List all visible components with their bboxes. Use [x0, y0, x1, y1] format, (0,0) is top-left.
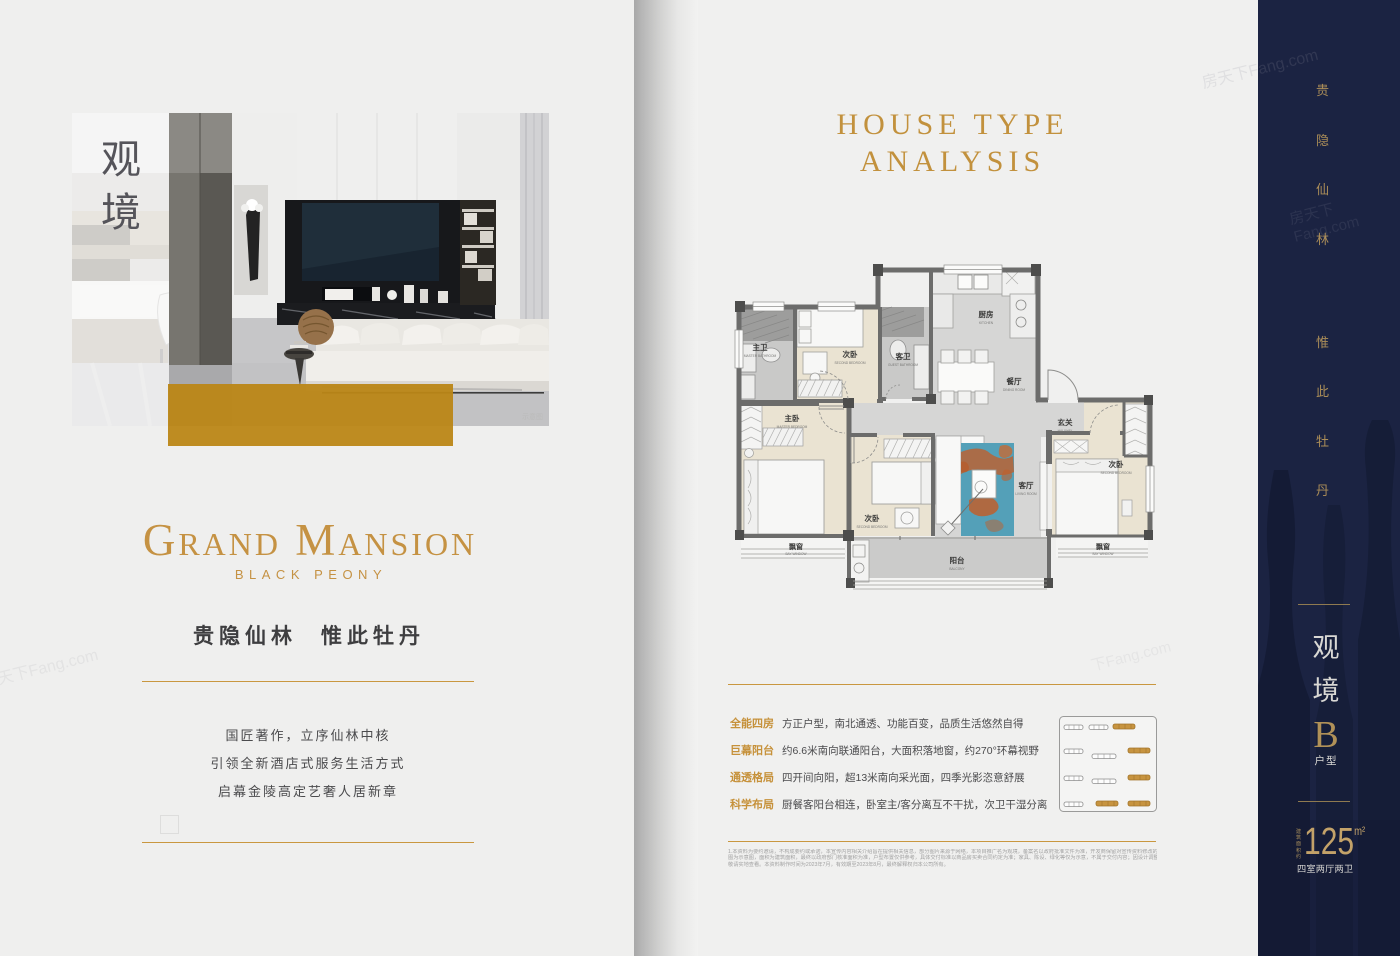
svg-text:次卧: 次卧: [1109, 459, 1125, 469]
svg-text:飘窗: 飘窗: [789, 542, 803, 551]
svg-text:客厅: 客厅: [1018, 480, 1035, 490]
svg-text:示意图: 示意图: [522, 412, 543, 421]
svg-text:HALLWAY: HALLWAY: [1058, 429, 1074, 433]
svg-text:餐厅: 餐厅: [1006, 376, 1022, 386]
svg-text:玄关: 玄关: [1058, 417, 1074, 427]
svg-text:主卫: 主卫: [753, 342, 768, 352]
svg-text:BALCONY: BALCONY: [949, 567, 965, 571]
svg-text:KITCHEN: KITCHEN: [979, 321, 994, 325]
svg-text:厨房: 厨房: [979, 309, 994, 319]
svg-text:MASTER BEDROOM: MASTER BEDROOM: [777, 425, 808, 429]
svg-text:MASTER BATHROOM: MASTER BATHROOM: [744, 354, 777, 358]
svg-text:BAY WINDOW: BAY WINDOW: [1093, 552, 1114, 556]
svg-text:SECOND BEDROOM: SECOND BEDROOM: [857, 525, 888, 529]
svg-text:GUEST BATHROOM: GUEST BATHROOM: [888, 363, 918, 367]
svg-text:主卧: 主卧: [785, 413, 800, 423]
svg-text:次卧: 次卧: [865, 513, 880, 523]
svg-text:DINING ROOM: DINING ROOM: [1003, 388, 1025, 392]
svg-text:次卧: 次卧: [843, 349, 858, 359]
svg-text:飘窗: 飘窗: [1096, 542, 1110, 551]
svg-text:BAY WINDOW: BAY WINDOW: [786, 552, 807, 556]
svg-text:阳台: 阳台: [950, 555, 965, 565]
svg-text:SECOND BEDROOM: SECOND BEDROOM: [1101, 471, 1132, 475]
svg-text:LIVING ROOM: LIVING ROOM: [1015, 492, 1037, 496]
svg-text:SECOND BEDROOM: SECOND BEDROOM: [835, 361, 866, 365]
svg-text:客卫: 客卫: [895, 351, 911, 361]
